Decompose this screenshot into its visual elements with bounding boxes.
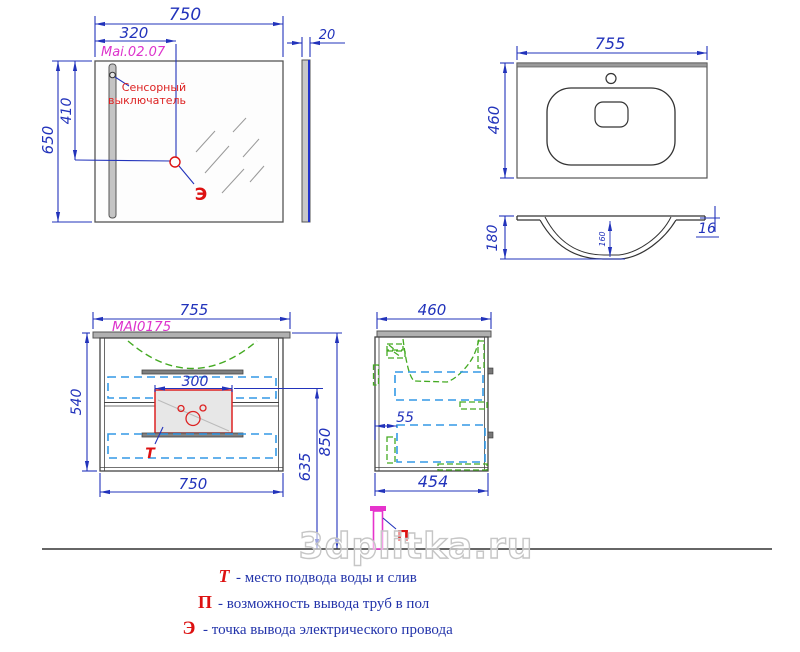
cabinet-side-view: 460 55 454: [374, 301, 494, 496]
cabinet-model-label: MAI0175: [112, 319, 171, 335]
switch-note-line1: Сенсорный: [122, 81, 186, 94]
siphon-width-label: 300: [182, 374, 209, 390]
sink-back-edge: [517, 63, 707, 67]
legend-text-pipes: - возможность вывода труб в пол: [218, 596, 430, 612]
sink-width-label: 755: [595, 34, 626, 53]
legend-key-electric: Э: [183, 618, 196, 639]
faucet-hole: [606, 74, 616, 84]
drain-height-label: 635: [296, 453, 314, 482]
mirror-width-label: 750: [169, 5, 201, 25]
electric-marker: Э: [195, 185, 207, 205]
sink-profile-outline: [517, 216, 705, 259]
mirror-side-view: 20: [287, 28, 345, 222]
mirror-thickness-label: 20: [319, 28, 336, 43]
bowl-depth-label: 160: [598, 231, 607, 246]
switch-note-line2: выключатель: [108, 94, 186, 107]
mirror-height-label: 650: [39, 126, 57, 155]
cabinet-height-label: 540: [69, 389, 85, 416]
water-marker: Т: [145, 446, 156, 462]
sink-top-view: 755 460: [485, 34, 707, 178]
mirror-model-label: Mai.02.07: [101, 45, 166, 60]
floor-section: П 3dplitka.ru: [42, 506, 772, 567]
cabinet-bottom-width-label: 750: [179, 475, 208, 493]
touch-switch-dot: [110, 72, 116, 78]
sink-profile-view: 180 160 16: [485, 206, 720, 259]
legend-text-water: - место подвода воды и слив: [236, 570, 417, 586]
mirror-light-strip: [109, 64, 116, 218]
mirror-outlet-height-label: 410: [59, 98, 75, 125]
side-knobs: [488, 368, 493, 438]
side-top-depth-label: 460: [418, 301, 447, 319]
mirror-side-dim-lines: [287, 37, 345, 57]
watermark: 3dplitka.ru: [299, 526, 534, 567]
legend-key-water: Т: [219, 566, 231, 586]
cabinet-front-view: 755 MAI0175 540 300 750 850 635 Т: [69, 301, 342, 549]
cabinet-top-width-label: 755: [180, 301, 209, 319]
cabinet-body-side: [375, 337, 488, 471]
mirror-front-view: 750 320 Mai.02.07 650 410 Сенсорный выкл…: [39, 5, 283, 222]
back-gap-label: 55: [396, 410, 414, 426]
side-bottom-depth-label: 454: [418, 472, 449, 491]
sink-profile-dim-lines: [499, 206, 720, 259]
drawing-canvas: 750 320 Mai.02.07 650 410 Сенсорный выкл…: [0, 0, 800, 652]
legend-key-pipes: П: [198, 592, 212, 612]
edge-thickness-label: 16: [698, 221, 716, 237]
sink-depth-label: 460: [485, 106, 503, 135]
cabinet-countertop-side: [377, 331, 491, 337]
legend: Т - место подвода воды и слив П - возмож…: [183, 566, 454, 639]
sink-profile-height-label: 180: [485, 225, 501, 252]
technical-drawing: 750 320 Mai.02.07 650 410 Сенсорный выкл…: [0, 0, 800, 652]
total-height-label: 850: [316, 428, 334, 457]
mirror-switch-offset-label: 320: [120, 24, 149, 42]
legend-text-electric: - точка вывода электрического провода: [203, 622, 453, 638]
